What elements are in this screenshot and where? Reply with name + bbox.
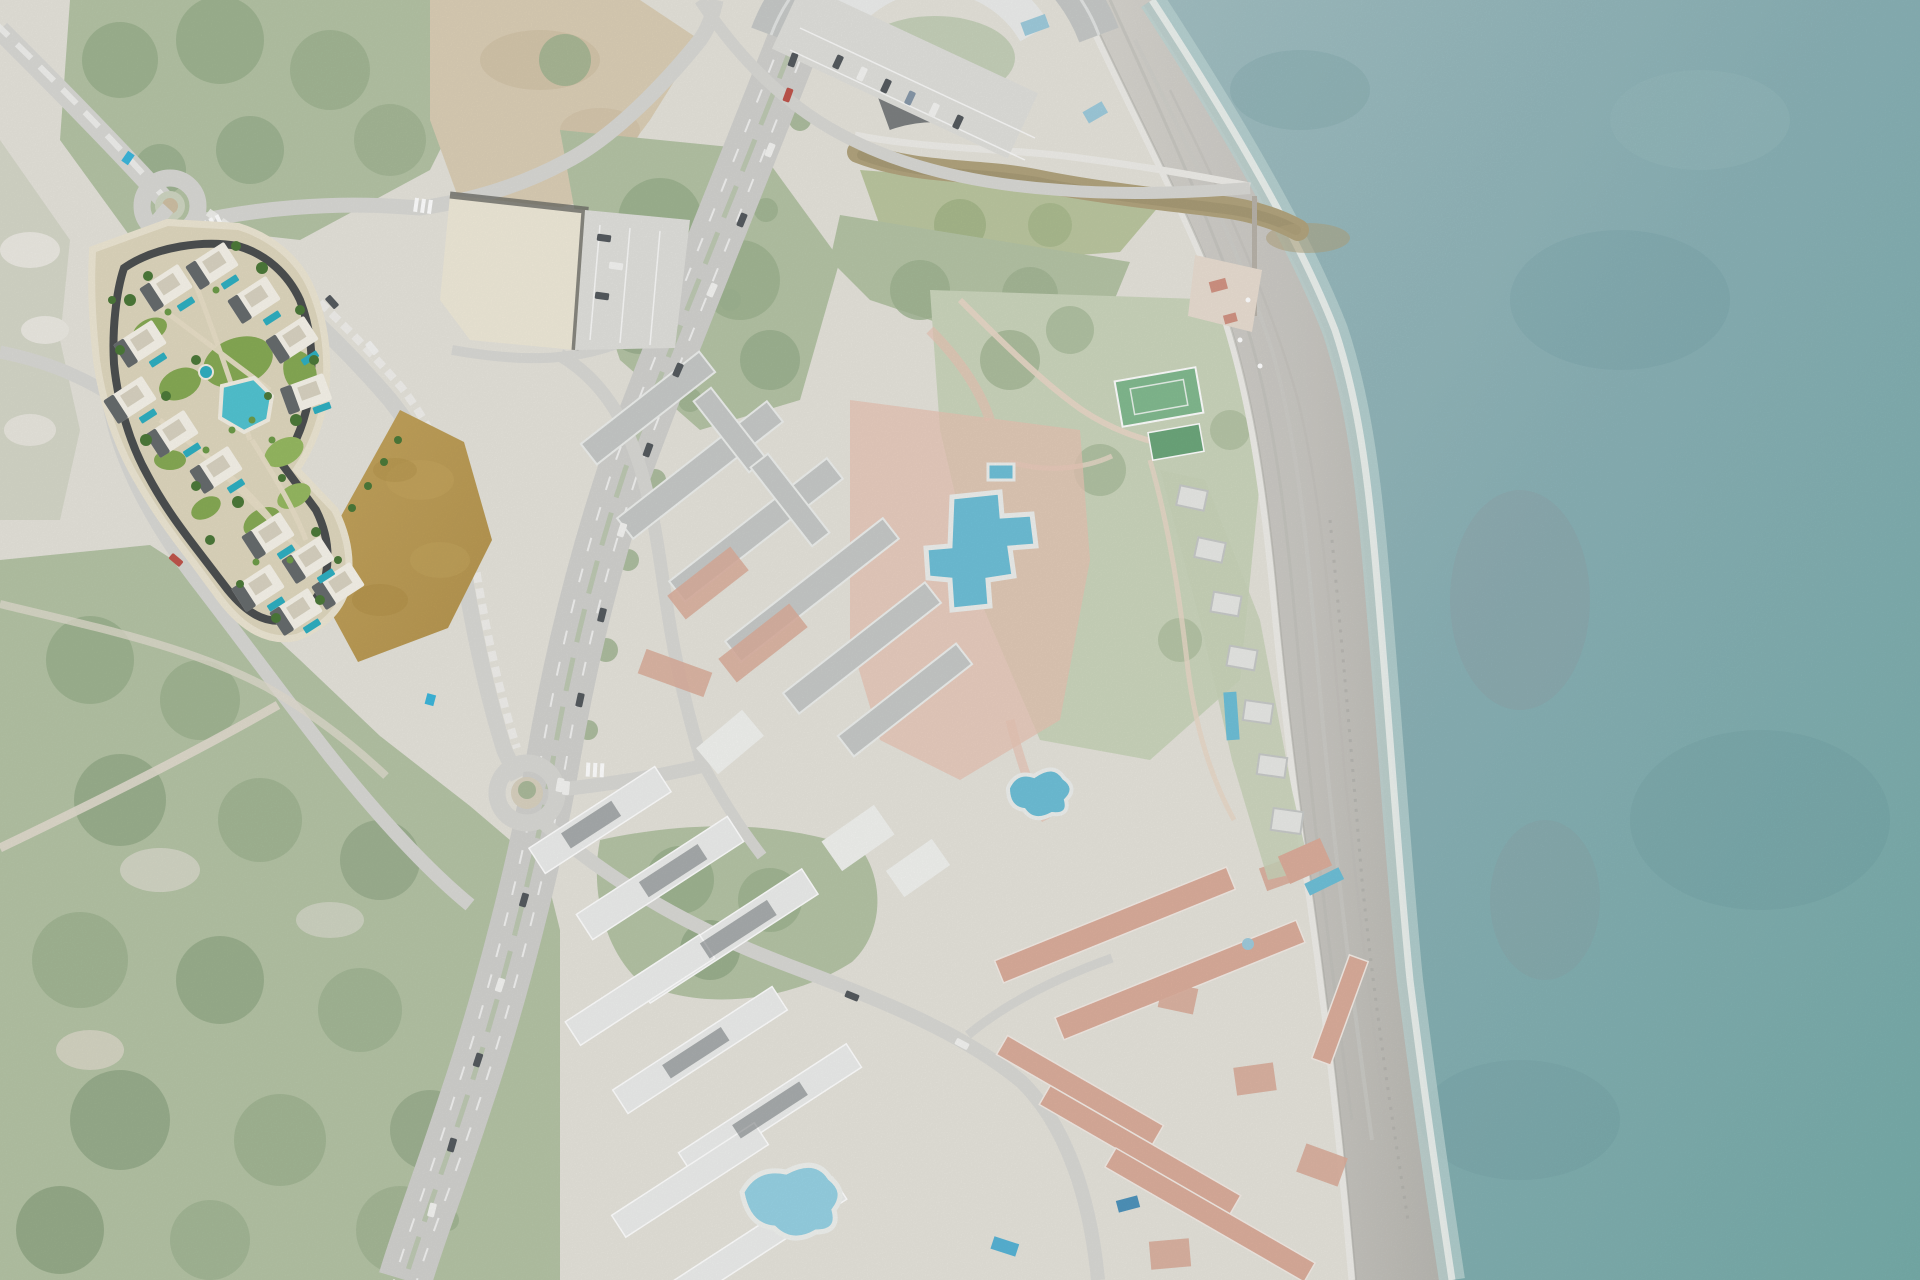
grain-overlay <box>0 0 1920 1280</box>
aerial-map-canvas <box>0 0 1920 1280</box>
aerial-map <box>0 0 1920 1280</box>
